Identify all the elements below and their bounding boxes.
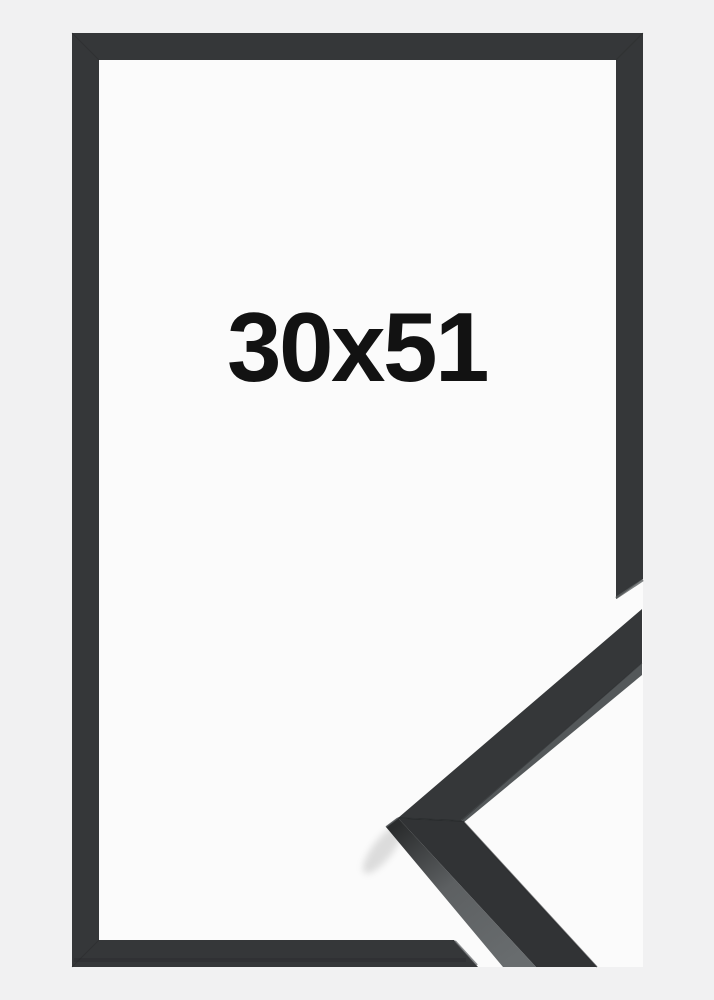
frame-opening xyxy=(99,60,643,967)
frame-top-bar xyxy=(72,33,643,60)
frame-left-bar xyxy=(72,33,99,967)
frame-bottom-bar xyxy=(72,940,478,967)
size-label: 30x51 xyxy=(227,292,487,402)
frame-graphic: 30x51 xyxy=(0,0,714,1000)
product-image: 30x51 xyxy=(0,0,714,1000)
frame-right-bar xyxy=(616,33,643,599)
